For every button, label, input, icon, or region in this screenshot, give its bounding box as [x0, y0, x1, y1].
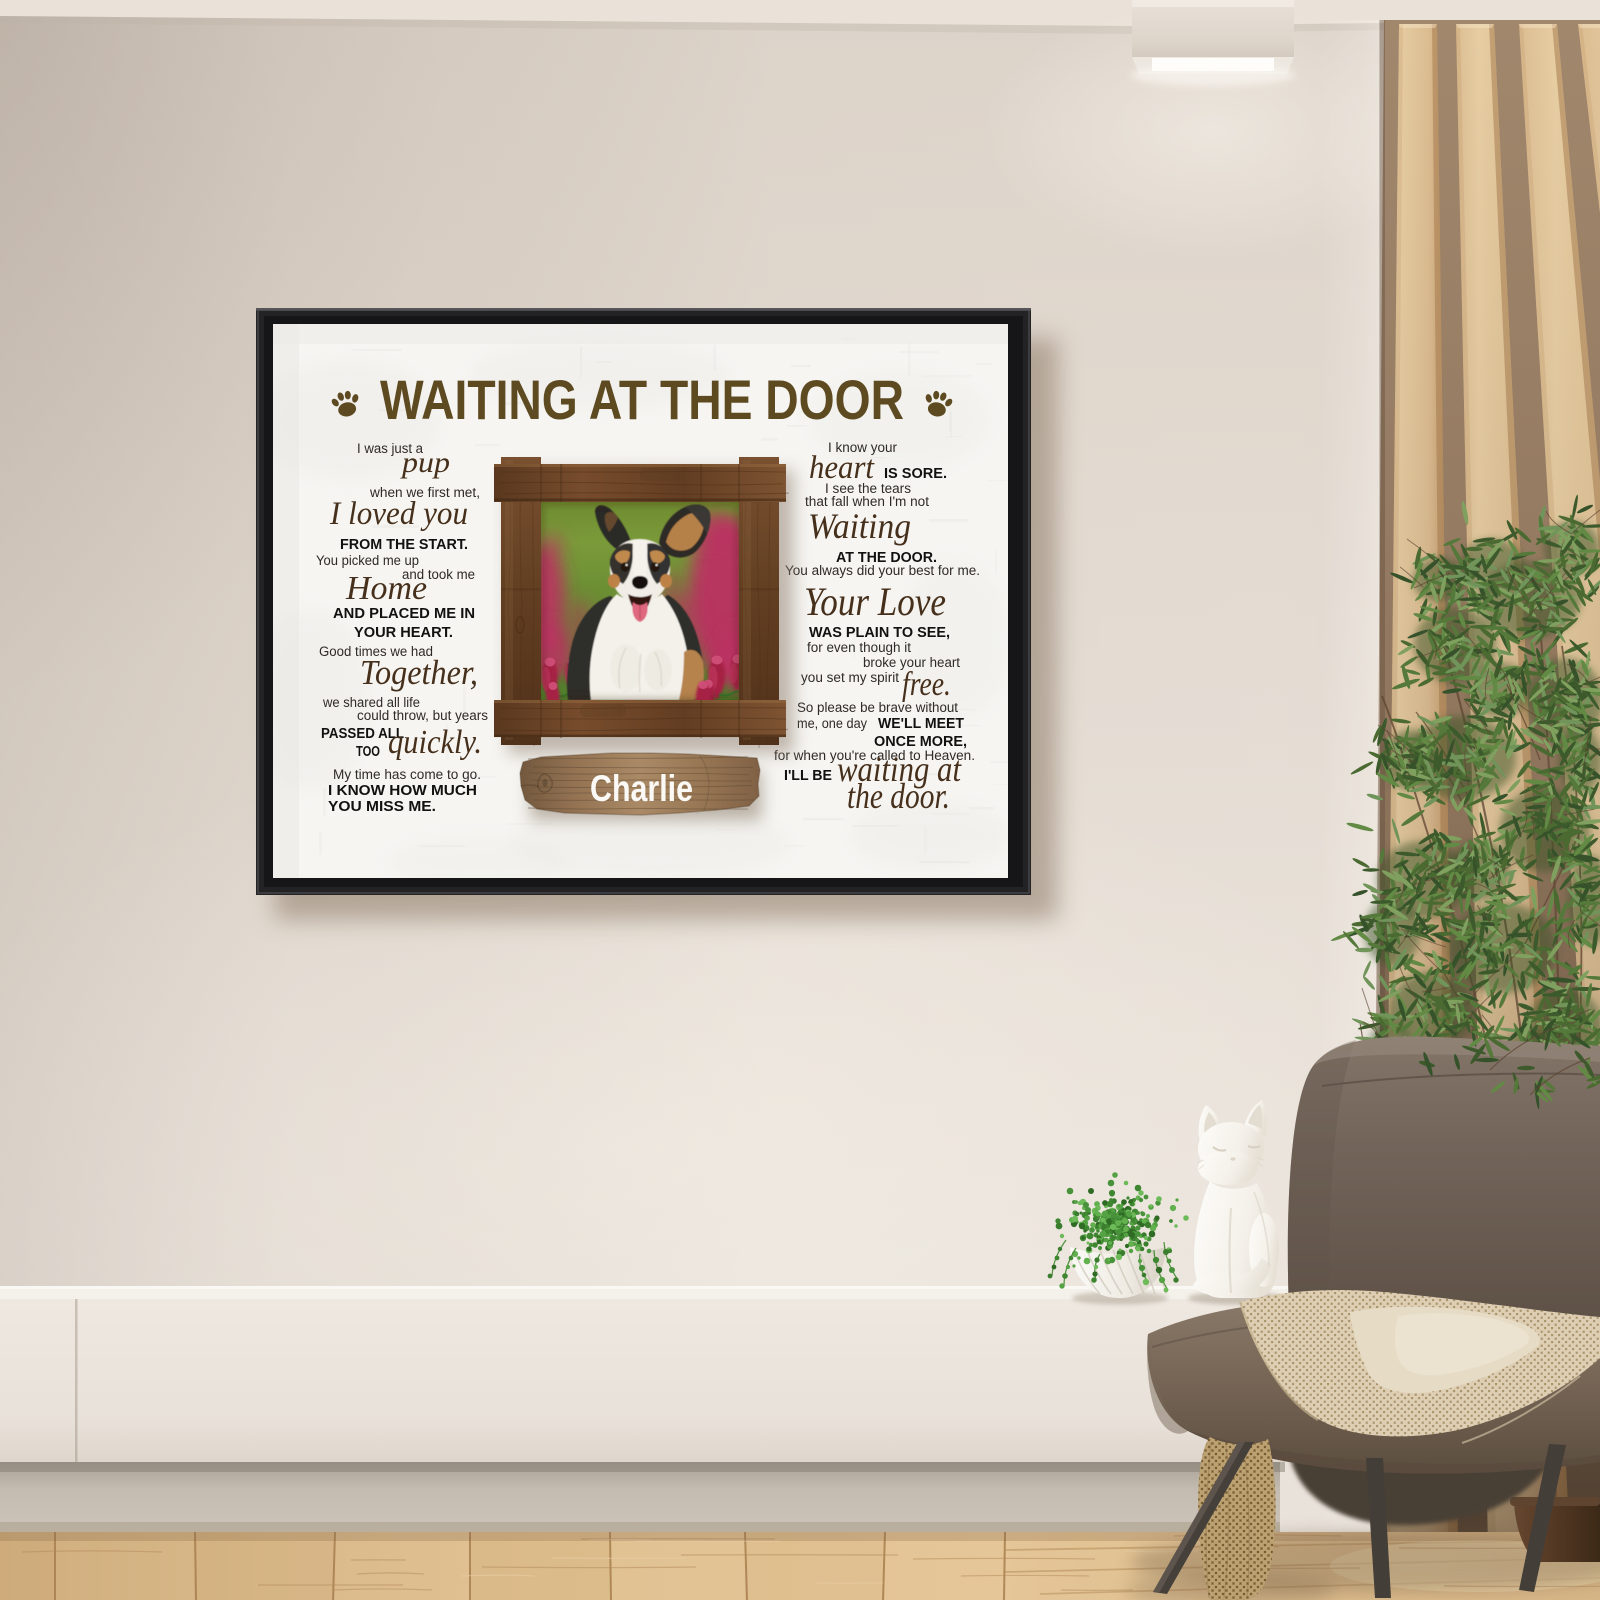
svg-text:me, one day: me, one day	[797, 716, 867, 731]
svg-text:YOU MISS ME.: YOU MISS ME.	[328, 799, 436, 815]
svg-text:I'LL BE: I'LL BE	[784, 768, 832, 784]
svg-text:could throw, but years: could throw, but years	[357, 708, 488, 723]
svg-text:for even though it: for even though it	[807, 640, 911, 655]
svg-text:I loved you: I loved you	[329, 496, 468, 532]
svg-text:Home: Home	[345, 570, 427, 607]
svg-text:So please be brave without: So please be brave without	[797, 700, 958, 715]
svg-text:you set my spirit: you set my spirit	[801, 670, 899, 685]
svg-text:TOO: TOO	[356, 744, 380, 760]
svg-text:YOUR HEART.: YOUR HEART.	[354, 625, 453, 641]
svg-text:I KNOW HOW MUCH: I KNOW HOW MUCH	[328, 783, 477, 799]
svg-text:AND PLACED ME IN: AND PLACED ME IN	[333, 606, 475, 622]
svg-text:Waiting: Waiting	[808, 506, 911, 546]
svg-text:WAS PLAIN TO SEE,: WAS PLAIN TO SEE,	[809, 625, 950, 641]
svg-text:Your Love: Your Love	[804, 579, 946, 624]
svg-text:You picked me up: You picked me up	[316, 553, 419, 568]
svg-text:FROM THE START.: FROM THE START.	[340, 537, 468, 553]
svg-text:Together,: Together,	[360, 653, 478, 692]
svg-text:quickly.: quickly.	[388, 724, 482, 761]
svg-text:WE'LL MEET: WE'LL MEET	[878, 716, 964, 732]
svg-text:WAITING AT THE DOOR: WAITING AT THE DOOR	[380, 368, 904, 431]
svg-text:free.: free.	[902, 666, 951, 703]
svg-text:My time has come to go.: My time has come to go.	[333, 767, 481, 782]
svg-text:Charlie: Charlie	[590, 768, 693, 809]
svg-text:IS SORE.: IS SORE.	[884, 466, 947, 482]
svg-text:the door.: the door.	[847, 776, 950, 816]
svg-text:pup: pup	[400, 446, 450, 479]
svg-text:You always did your best for m: You always did your best for me.	[785, 563, 980, 578]
